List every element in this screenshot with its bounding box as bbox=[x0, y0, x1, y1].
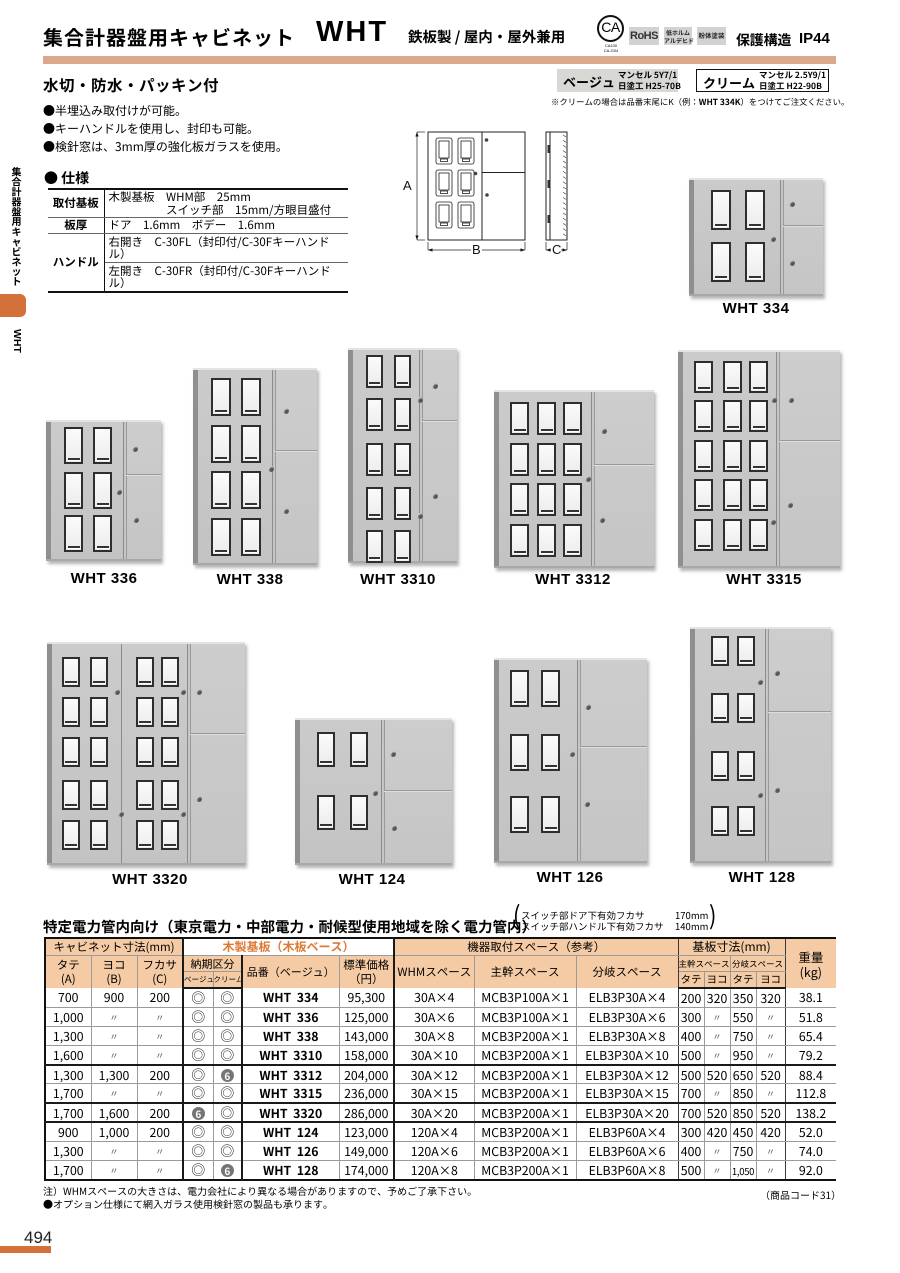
svg-text:C: C bbox=[552, 242, 561, 257]
svg-text:B: B bbox=[472, 242, 481, 257]
svg-text:A: A bbox=[403, 178, 412, 193]
